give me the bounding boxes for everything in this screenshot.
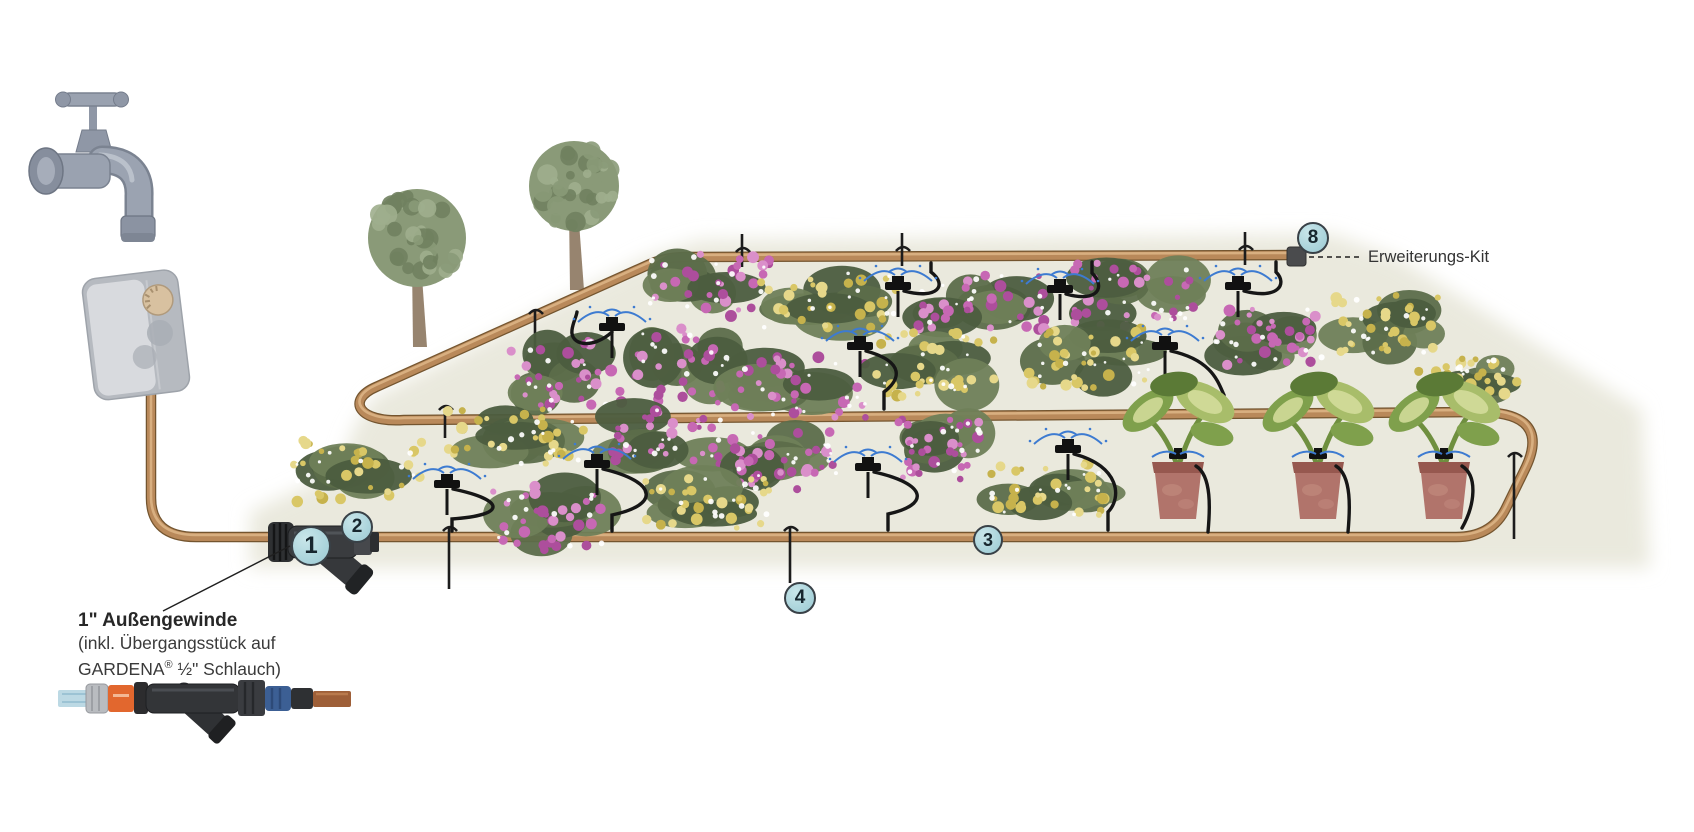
thread-note: 1" Außengewinde (inkl. Übergangsstück au… <box>78 610 281 680</box>
thread-note-title: 1" Außengewinde <box>78 610 281 632</box>
brand-text: GARDENA <box>78 659 165 679</box>
callout-1-label: 1 <box>304 532 317 560</box>
extension-kit-label: Erweiterungs-Kit <box>1368 248 1489 267</box>
hose-size-text: ½" Schlauch) <box>173 659 281 679</box>
callout-4-label: 4 <box>795 587 806 609</box>
callout-4: 4 <box>784 582 816 614</box>
registered-mark: ® <box>165 659 173 671</box>
callout-1: 1 <box>291 526 331 566</box>
callout-8: 8 <box>1297 222 1329 254</box>
water-computer <box>81 268 191 401</box>
thread-note-line2: (inkl. Übergangsstück auf <box>78 632 281 654</box>
callout-3: 3 <box>973 525 1003 555</box>
water-tap <box>29 92 155 242</box>
thread-note-line3: GARDENA® ½" Schlauch) <box>78 654 281 680</box>
callout-2-label: 2 <box>352 516 363 538</box>
callout-2: 2 <box>341 511 373 543</box>
illustration-canvas: 1 2 3 4 8 1" Außengewinde (inkl. Übergan… <box>0 0 1694 832</box>
callout-8-label: 8 <box>1308 227 1319 249</box>
tree <box>368 189 466 347</box>
irrigation-diagram <box>0 0 1694 832</box>
callout-3-label: 3 <box>983 530 993 551</box>
tree <box>529 141 619 290</box>
product-photo-basic-unit <box>58 676 351 745</box>
